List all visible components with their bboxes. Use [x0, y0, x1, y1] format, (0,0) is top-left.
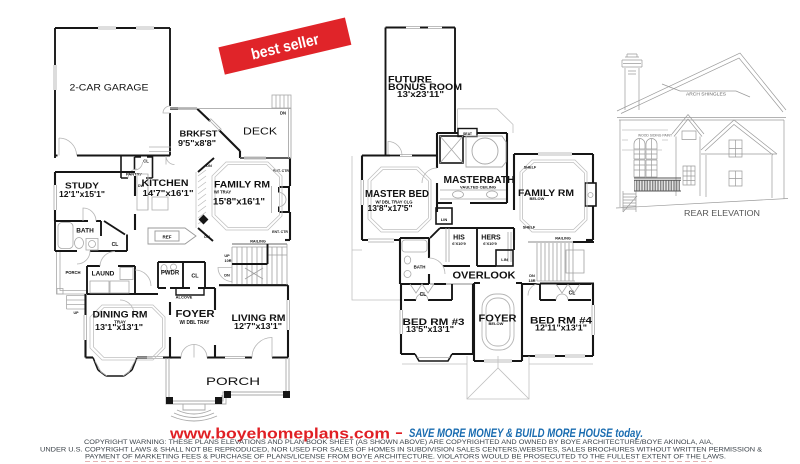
svg-text:STUDY: STUDY [65, 181, 99, 191]
svg-text:DN: DN [280, 111, 286, 116]
svg-text:RAILING: RAILING [250, 240, 266, 244]
svg-text:BRKFST: BRKFST [180, 129, 219, 139]
svg-text:CL: CL [143, 159, 149, 164]
svg-text:BATH: BATH [414, 265, 426, 270]
svg-text:PORCH: PORCH [65, 270, 80, 275]
svg-text:CL: CL [569, 291, 576, 297]
svg-text:15'8"x16'1": 15'8"x16'1" [213, 196, 265, 206]
svg-text:REAR ELEVATION: REAR ELEVATION [684, 209, 760, 218]
svg-text:FAMILY RM: FAMILY RM [518, 188, 574, 199]
svg-text:FOYER: FOYER [176, 309, 216, 320]
svg-text:PAYMENT OF MARKETING FEES & PU: PAYMENT OF MARKETING FEES & PURCHASE OF … [85, 454, 726, 461]
svg-text:PORCH: PORCH [206, 376, 260, 388]
svg-text:UNDER U.S. COPYRIGHT LAWS & SH: UNDER U.S. COPYRIGHT LAWS & SHALL NOT BE… [40, 446, 763, 453]
svg-text:W/ TRAY: W/ TRAY [214, 190, 232, 195]
svg-text:6'X10'9: 6'X10'9 [483, 241, 497, 246]
svg-text:LIN: LIN [501, 257, 508, 262]
svg-text:REF: REF [163, 235, 172, 240]
svg-text:VAULTED CEILING: VAULTED CEILING [460, 185, 496, 190]
svg-text:PWDR: PWDR [161, 271, 180, 277]
svg-text:14'7"x16'1": 14'7"x16'1" [143, 188, 194, 198]
svg-text:LIN: LIN [441, 217, 448, 222]
svg-text:MASTER BED: MASTER BED [365, 189, 429, 200]
svg-text:DN: DN [204, 235, 210, 239]
svg-text:SHELF: SHELF [524, 166, 537, 170]
svg-text:10R: 10R [225, 259, 232, 263]
svg-text:OVERLOOK: OVERLOOK [453, 270, 516, 282]
svg-text:COPYRIGHT WARNING: THESE PLANS: COPYRIGHT WARNING: THESE PLANS ELEVATION… [84, 439, 713, 446]
svg-text:12'1"x15'1": 12'1"x15'1" [59, 190, 105, 199]
svg-text:CL: CL [112, 242, 119, 248]
svg-text:RAILING: RAILING [555, 237, 571, 241]
svg-text:UP: UP [224, 254, 230, 258]
svg-text:W/ DBL TRAY: W/ DBL TRAY [180, 320, 211, 326]
svg-text:ENT. CTR: ENT. CTR [272, 230, 288, 234]
svg-text:12'11"x13'1": 12'11"x13'1" [535, 323, 587, 333]
svg-text:12'7"x13'1": 12'7"x13'1" [234, 321, 282, 331]
svg-text:ARCH SHINGLES: ARCH SHINGLES [686, 92, 726, 97]
svg-text:DN: DN [206, 164, 212, 168]
svg-text:CL: CL [191, 274, 199, 280]
svg-text:DN: DN [529, 274, 535, 278]
svg-text:WOOD SIDING PAINT: WOOD SIDING PAINT [638, 133, 672, 138]
svg-text:18R: 18R [529, 279, 536, 283]
svg-text:BELOW: BELOW [530, 196, 545, 201]
svg-text:-: - [395, 424, 404, 440]
svg-text:9'5"x8'8": 9'5"x8'8" [178, 139, 216, 148]
svg-text:SHELF: SHELF [523, 226, 536, 230]
svg-text:SEAT: SEAT [463, 132, 473, 136]
svg-text:13'5"x13'1": 13'5"x13'1" [406, 324, 454, 334]
svg-text:2-CAR GARAGE: 2-CAR GARAGE [70, 83, 149, 93]
svg-text:KITCHEN: KITCHEN [142, 178, 189, 188]
svg-text:ALCOVE: ALCOVE [176, 295, 193, 300]
svg-text:DECK: DECK [243, 127, 277, 138]
svg-text:13'1"x13'1": 13'1"x13'1" [95, 322, 143, 332]
svg-text:BATH: BATH [76, 228, 94, 235]
svg-text:13'x23'11": 13'x23'11" [397, 89, 444, 99]
svg-text:CL: CL [420, 292, 427, 298]
svg-text:SAVE MORE MONEY & BUILD MORE H: SAVE MORE MONEY & BUILD MORE HOUSE today… [409, 428, 643, 440]
svg-text:13'8"x17'5": 13'8"x17'5" [368, 203, 413, 213]
svg-text:LAUND: LAUND [92, 271, 115, 278]
svg-text:UP: UP [74, 311, 80, 315]
svg-text:BELOW: BELOW [489, 321, 504, 326]
svg-text:DN: DN [224, 274, 230, 278]
svg-text:6'X10'9: 6'X10'9 [452, 241, 466, 246]
